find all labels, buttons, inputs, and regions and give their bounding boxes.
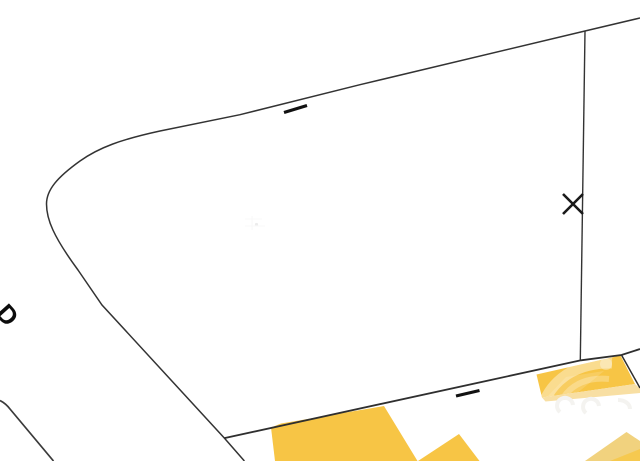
svg-text:D: D — [0, 298, 25, 332]
